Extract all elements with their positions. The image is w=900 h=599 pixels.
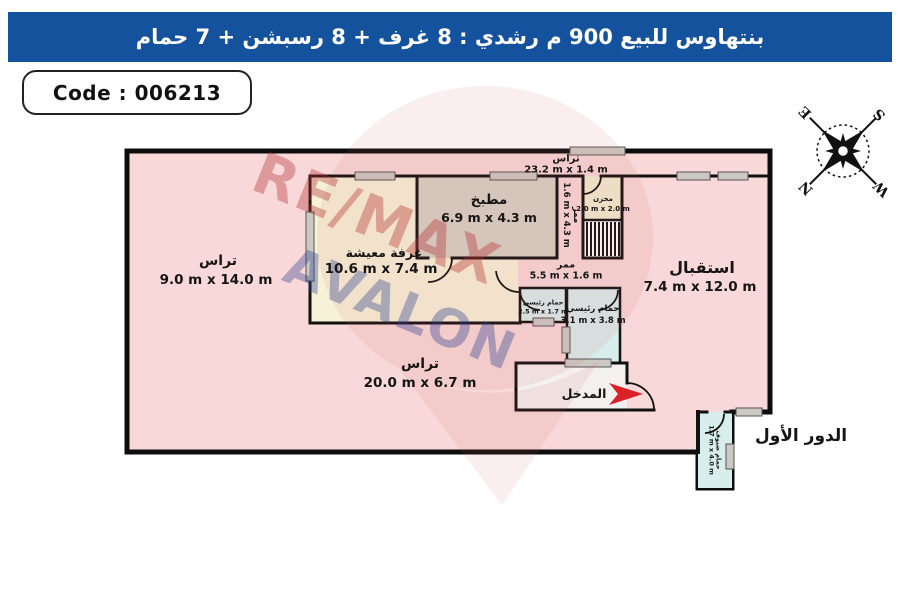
entrance-label: المدخل xyxy=(562,387,607,401)
room-dims-reception: 7.4 m x 12.0 m xyxy=(644,280,757,296)
room-label-terrace-top: تراس xyxy=(552,153,579,165)
room-label-corridor-v: ممر 1.6 m x 4.3 m xyxy=(560,182,580,247)
room-label-reception: استقبال xyxy=(669,259,735,277)
floor-title: الدور الأول xyxy=(755,427,847,447)
room-dims-corridor-h: 5.5 m x 1.6 m xyxy=(530,272,603,283)
room-dims-terrace-bottom: 20.0 m x 6.7 m xyxy=(364,376,477,392)
room-label-bath-main-small: حمام رئيسي xyxy=(523,299,564,306)
room-label-living: غرفة معيشة xyxy=(346,246,423,260)
compass-icon: N S E W xyxy=(759,67,900,238)
room-label-kitchen: مطبخ xyxy=(471,193,508,209)
room-label-storage: مخزن xyxy=(593,195,613,203)
floor-plan-page: بنتهاوس للبيع 900 م رشدي : 8 غرف + 8 رسب… xyxy=(0,0,900,599)
room-label-bath-guest: حمام ضيوف 1.7 m x 4.0 m xyxy=(707,425,722,475)
room-dims-kitchen: 6.9 m x 4.3 m xyxy=(441,211,537,225)
room-dims-terrace-top: 23.2 m x 1.4 m xyxy=(524,164,608,176)
room-dims-terrace-left: 9.0 m x 14.0 m xyxy=(160,273,273,289)
floor-plan-drawing: N S E W xyxy=(0,0,900,599)
room-dims-living: 10.6 m x 7.4 m xyxy=(325,262,438,278)
room-label-bath-main: حمام رئيسي xyxy=(566,305,619,315)
room-label-terrace-bottom: تراس xyxy=(401,356,439,372)
room-dims-bath-main-small: 2.5 m x 1.7 m xyxy=(518,308,568,315)
room-dims-storage: 2.0 m x 2.0 m xyxy=(576,205,630,213)
room-label-terrace-left: تراس xyxy=(199,253,237,269)
room-dims-bath-main: 3.1 m x 3.8 m xyxy=(560,317,625,327)
svg-text:W: W xyxy=(870,177,893,200)
